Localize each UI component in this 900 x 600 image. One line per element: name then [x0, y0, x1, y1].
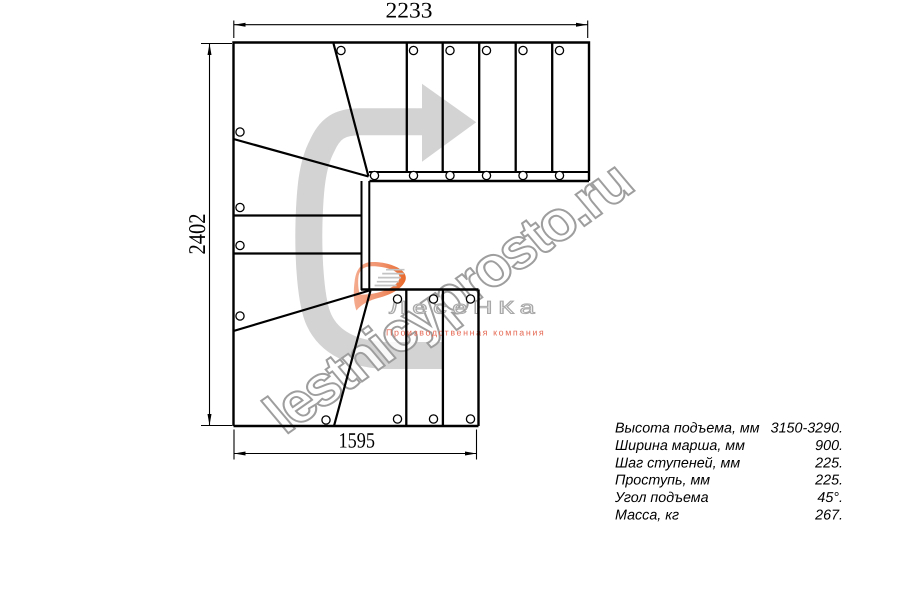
svg-text:45°.: 45°. — [817, 490, 843, 506]
svg-text:900.: 900. — [815, 438, 843, 454]
svg-text:2233: 2233 — [386, 0, 433, 23]
svg-text:Угол подъема: Угол подъема — [614, 490, 709, 506]
svg-text:3150-3290.: 3150-3290. — [771, 421, 843, 437]
svg-text:267.: 267. — [814, 507, 843, 523]
svg-text:1595: 1595 — [339, 429, 376, 453]
svg-text:Шаг ступеней, мм: Шаг ступеней, мм — [615, 455, 740, 471]
svg-text:225.: 225. — [814, 473, 843, 489]
svg-text:Ширина марша, мм: Ширина марша, мм — [615, 438, 745, 454]
svg-text:Проступь, мм: Проступь, мм — [615, 473, 710, 489]
svg-text:Производственная компания: Производственная компания — [386, 328, 545, 338]
svg-text:ЛесеНКа: ЛесеНКа — [389, 298, 540, 318]
svg-text:Масса, кг: Масса, кг — [615, 507, 679, 523]
svg-text:225.: 225. — [814, 455, 843, 471]
svg-text:Высота подъема, мм: Высота подъема, мм — [615, 421, 760, 437]
svg-text:2402: 2402 — [185, 214, 211, 255]
